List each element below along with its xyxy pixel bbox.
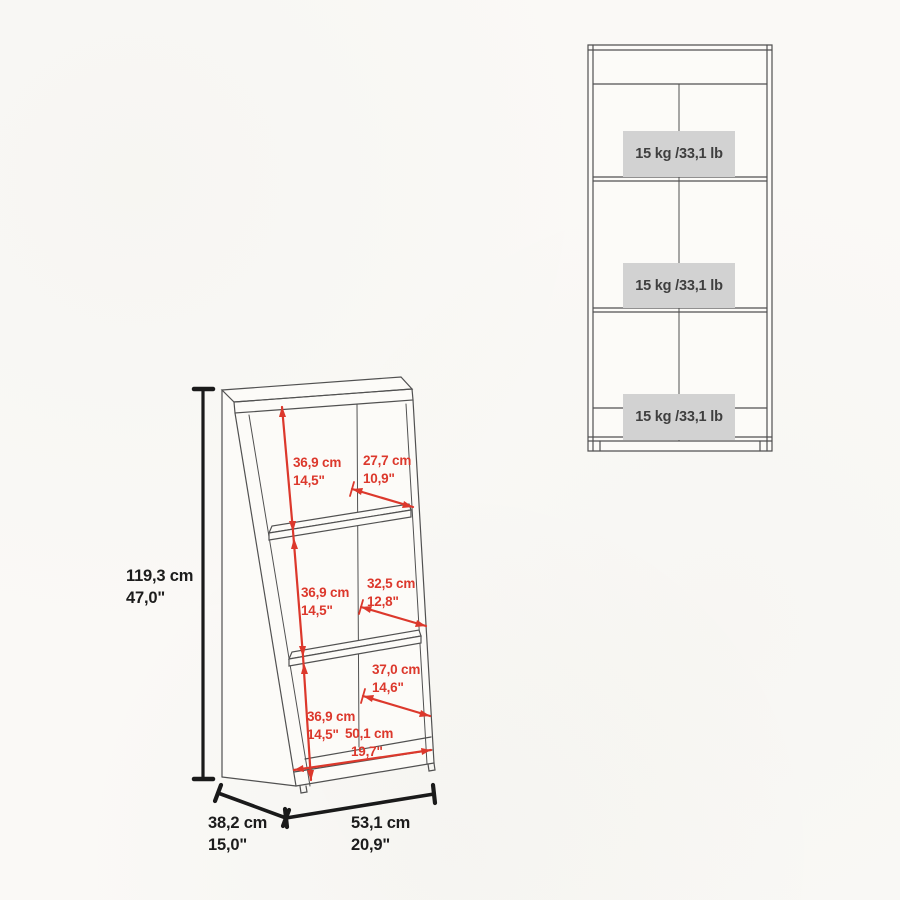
dim-inner-width: 50,1 cm 19,7"	[345, 725, 393, 761]
dim-inch-value: 14,5"	[301, 602, 349, 620]
dim-cm-value: 119,3 cm	[126, 565, 193, 587]
dim-cm-value: 27,7 cm	[363, 452, 411, 470]
dimension-diagram-canvas: 36,9 cm 14,5" 27,7 cm 10,9" 36,9 cm 14,5…	[0, 0, 900, 900]
dim-cm-value: 36,9 cm	[293, 454, 341, 472]
dim-cm-value: 50,1 cm	[345, 725, 393, 743]
dim-compartment2-depth: 32,5 cm 12,8"	[367, 575, 415, 611]
dim-inch-value: 10,9"	[363, 470, 411, 488]
dim-compartment1-height: 36,9 cm 14,5"	[293, 454, 341, 490]
dim-compartment3-depth: 37,0 cm 14,6"	[372, 661, 420, 697]
shelf-capacity-badge-1: 15 kg /33,1 lb	[623, 131, 735, 177]
dim-inch-value: 14,6"	[372, 679, 420, 697]
dim-cm-value: 53,1 cm	[351, 812, 410, 834]
dim-inch-value: 20,9"	[351, 834, 410, 856]
front-view-drawing	[588, 45, 772, 451]
dim-cm-value: 32,5 cm	[367, 575, 415, 593]
dim-overall-width: 53,1 cm 20,9"	[351, 812, 410, 856]
dim-overall-depth: 38,2 cm 15,0"	[208, 812, 267, 856]
bookcase-linework	[0, 0, 900, 900]
dim-cm-value: 38,2 cm	[208, 812, 267, 834]
dim-cm-value: 36,9 cm	[307, 708, 355, 726]
dim-cm-value: 36,9 cm	[301, 584, 349, 602]
front-view-frame	[588, 45, 772, 451]
dim-inch-value: 15,0"	[208, 834, 267, 856]
dim-inch-value: 14,5"	[293, 472, 341, 490]
dim-compartment1-depth: 27,7 cm 10,9"	[363, 452, 411, 488]
shelf-capacity-badge-2: 15 kg /33,1 lb	[623, 263, 735, 308]
shelf-capacity-badge-3: 15 kg /33,1 lb	[623, 394, 735, 440]
dim-overall-height: 119,3 cm 47,0"	[126, 565, 193, 609]
dim-inch-value: 47,0"	[126, 587, 193, 609]
dim-compartment2-height: 36,9 cm 14,5"	[301, 584, 349, 620]
dim-cm-value: 37,0 cm	[372, 661, 420, 679]
dim-inch-value: 12,8"	[367, 593, 415, 611]
height-dimension-line	[194, 389, 213, 779]
dim-inch-value: 19,7"	[345, 743, 393, 761]
